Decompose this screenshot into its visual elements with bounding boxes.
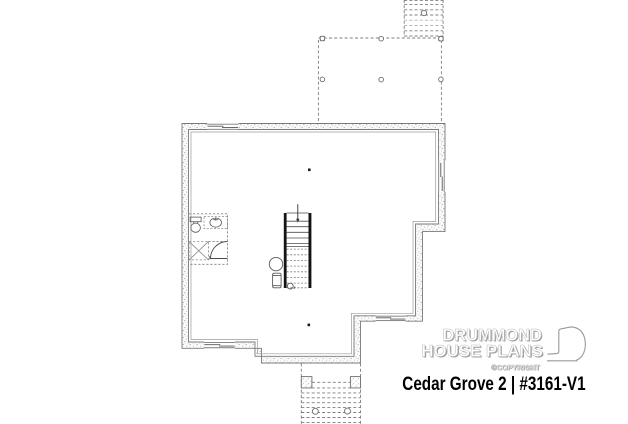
svg-text:HOUSE PLANS: HOUSE PLANS	[421, 343, 543, 361]
svg-text:Cedar Grove 2 | #3161-V1: Cedar Grove 2 | #3161-V1	[402, 373, 585, 395]
svg-text:©COPYRIGHT: ©COPYRIGHT	[491, 363, 540, 372]
